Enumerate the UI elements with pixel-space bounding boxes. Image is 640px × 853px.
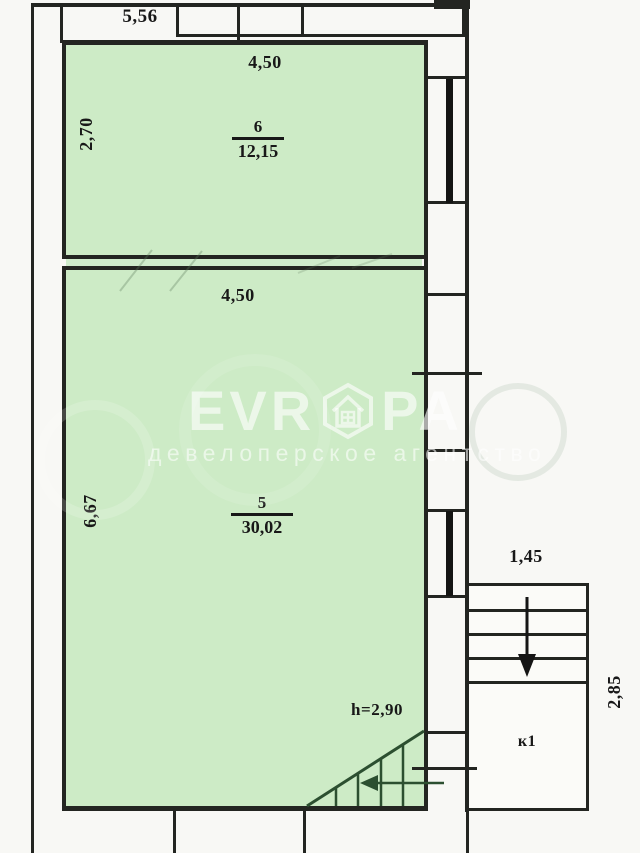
dimension-room5-depth: 6,67	[62, 483, 118, 539]
wall-top-stub-4	[301, 3, 304, 36]
room5-number-area: 5 30,02	[222, 494, 302, 537]
room6-area: 12,15	[218, 142, 298, 161]
fraction-bar	[232, 137, 284, 140]
wall-right-outer	[465, 34, 469, 812]
wall-top-stub-3	[237, 3, 240, 44]
fraction-bar	[231, 513, 293, 516]
watermark-circle-faint	[472, 386, 564, 478]
wall-top-stub-1	[60, 3, 63, 43]
wall-divider-7	[424, 731, 469, 734]
wall-bottom-stub-2	[303, 810, 306, 853]
dimension-room6-depth: 2,70	[58, 106, 114, 162]
wall-tick-mark-1	[412, 372, 482, 375]
room6-number: 6	[218, 118, 298, 136]
dimension-stair-depth: 2,85	[586, 664, 640, 720]
room5-number: 5	[222, 494, 302, 512]
staircase-label: к1	[487, 733, 567, 751]
stair-landing-line	[466, 681, 589, 684]
window-symbol-room5	[446, 511, 453, 596]
stair-step-line-1	[466, 609, 589, 612]
dimension-room6-width: 4,50	[225, 52, 305, 73]
dimension-stair-width: 1,45	[486, 546, 566, 567]
window-symbol-room6	[446, 79, 453, 203]
wall-divider-4	[424, 449, 469, 452]
room5-area: 30,02	[222, 518, 302, 537]
floor-plan: 5,56 4,50 2,70 4,50 6,67 h=2,90 1,45 2,8…	[0, 0, 640, 853]
wall-bottom-stub-1	[173, 810, 176, 853]
wall-top-outer	[31, 3, 470, 7]
stair-step-line-3	[466, 657, 589, 660]
wall-divider-3	[424, 293, 469, 296]
dimension-ceiling-height: h=2,90	[327, 700, 427, 720]
wall-top-stub-right	[462, 3, 469, 36]
dimension-outer-top-width: 5,56	[100, 6, 180, 28]
wall-right-inner	[424, 40, 428, 810]
wall-left-outer	[31, 3, 34, 853]
dimension-room5-width: 4,50	[198, 285, 278, 306]
stair-step-line-2	[466, 633, 589, 636]
room6-number-area: 6 12,15	[218, 118, 298, 161]
wall-top-strip-bottom	[176, 34, 469, 37]
staircase-k1-block	[466, 583, 589, 811]
wall-tick-mark-2	[412, 767, 477, 770]
wall-bottom-stub-3	[466, 810, 469, 853]
